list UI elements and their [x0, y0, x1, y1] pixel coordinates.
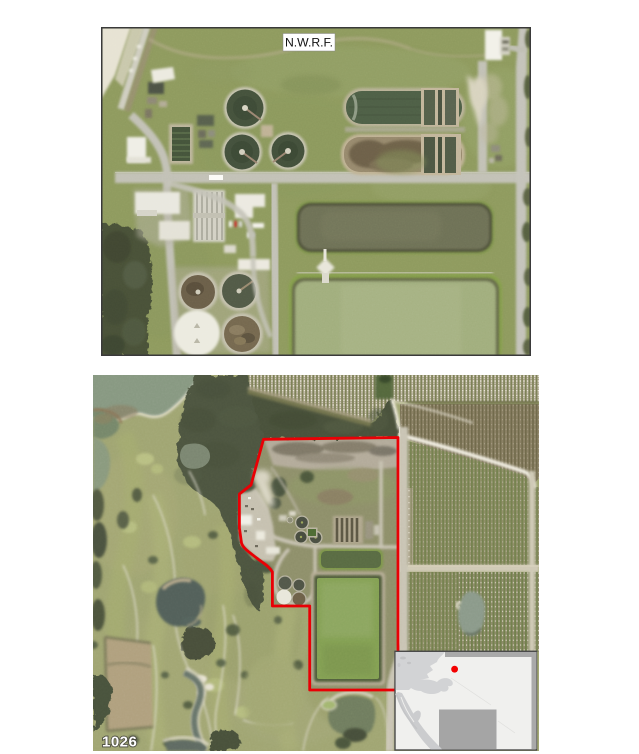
svg-text:1026: 1026	[102, 734, 137, 751]
svg-text:N.W.R.F.: N.W.R.F.	[285, 36, 333, 50]
